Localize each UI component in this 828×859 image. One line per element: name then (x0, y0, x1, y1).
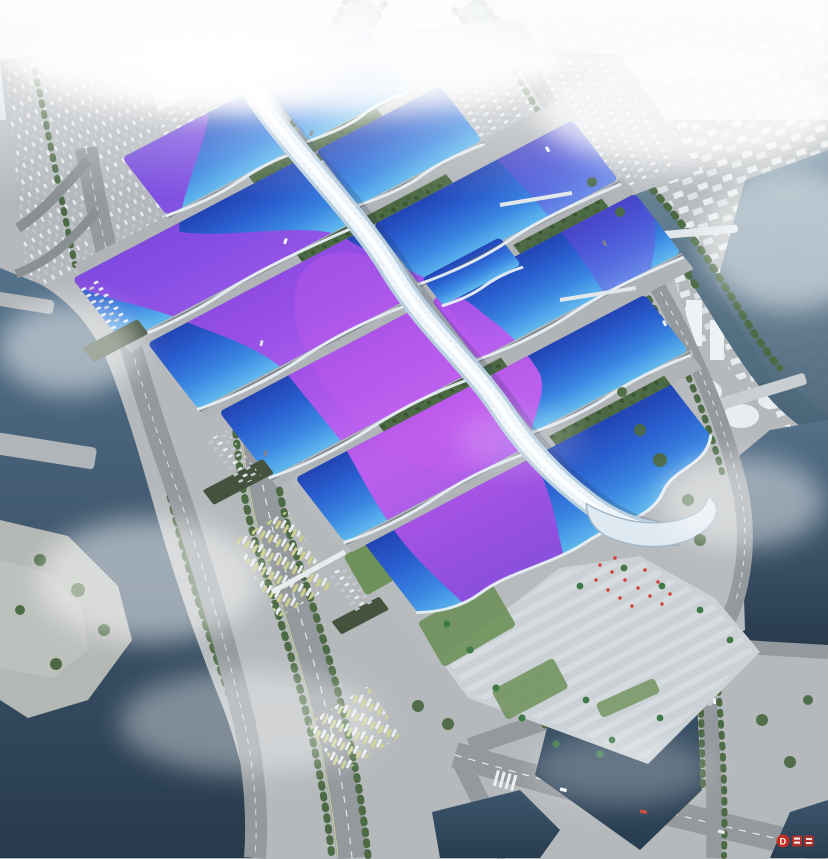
rendering-canvas: D (0, 0, 828, 859)
watermark-letter: D (780, 836, 787, 846)
aerial-rendering-exhibition-center: D (0, 0, 828, 859)
sky-haze-top (0, 0, 828, 70)
watermark-logo: D (777, 835, 815, 848)
